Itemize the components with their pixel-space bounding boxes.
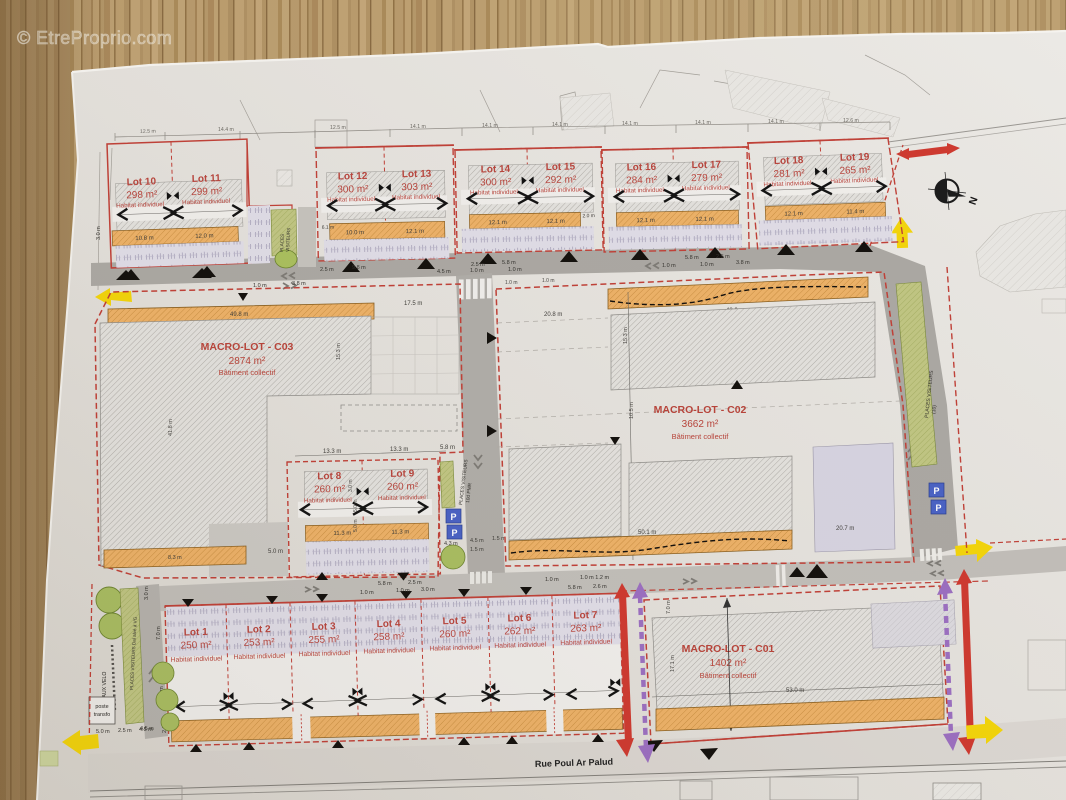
- svg-text:© EtreProprio.com: © EtreProprio.com: [17, 28, 172, 48]
